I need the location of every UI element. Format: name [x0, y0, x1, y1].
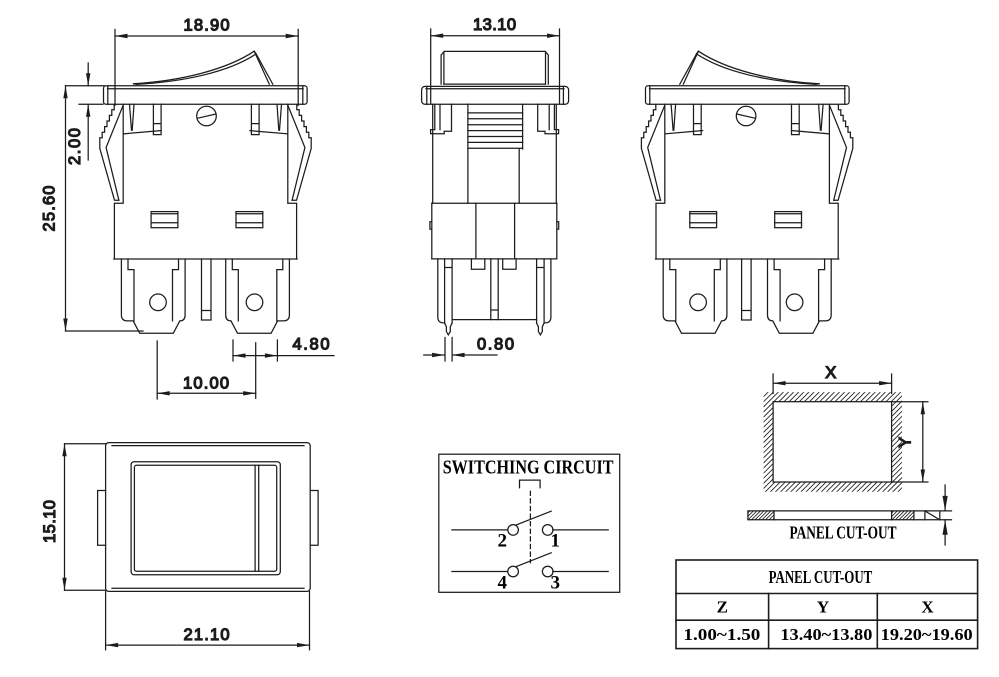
- svg-text:13.40~13.80: 13.40~13.80: [780, 625, 872, 644]
- svg-text:Y: Y: [897, 436, 915, 448]
- svg-text:3: 3: [550, 572, 560, 593]
- svg-text:Y: Y: [817, 598, 829, 617]
- svg-text:13.10: 13.10: [473, 16, 517, 34]
- svg-text:15.10: 15.10: [41, 499, 59, 543]
- svg-text:X: X: [825, 364, 837, 382]
- svg-text:10.00: 10.00: [183, 375, 230, 393]
- svg-text:PANEL CUT-OUT: PANEL CUT-OUT: [790, 523, 897, 543]
- svg-text:2.00: 2.00: [66, 127, 84, 165]
- svg-text:21.10: 21.10: [184, 626, 231, 644]
- svg-text:4.80: 4.80: [293, 336, 331, 354]
- svg-text:Z: Z: [717, 598, 728, 617]
- svg-text:25.60: 25.60: [41, 185, 59, 232]
- svg-text:4: 4: [497, 572, 507, 593]
- svg-text:1.00~1.50: 1.00~1.50: [683, 625, 760, 644]
- svg-text:18.90: 18.90: [184, 17, 231, 35]
- svg-text:1: 1: [550, 531, 560, 552]
- svg-text:2: 2: [497, 531, 507, 552]
- svg-text:X: X: [921, 598, 934, 617]
- svg-text:0.80: 0.80: [477, 336, 515, 354]
- svg-text:PANEL CUT-OUT: PANEL CUT-OUT: [769, 567, 873, 587]
- svg-text:19.20~19.60: 19.20~19.60: [881, 625, 973, 644]
- svg-text:SWITCHING CIRCUIT: SWITCHING CIRCUIT: [443, 457, 614, 479]
